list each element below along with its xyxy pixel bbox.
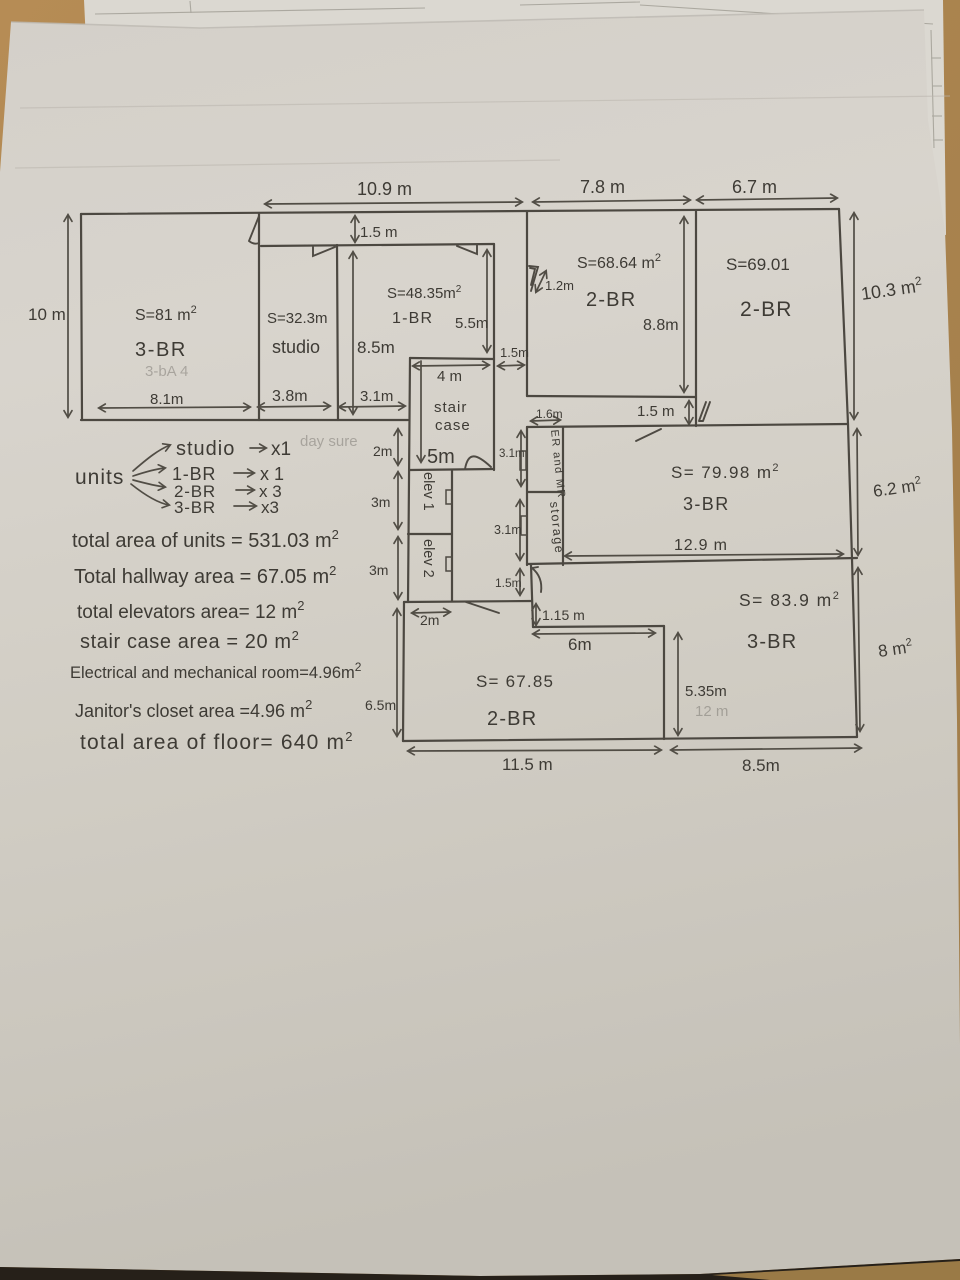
svg-text:1.5m: 1.5m: [500, 345, 529, 360]
svg-text:10.9 m: 10.9 m: [357, 179, 412, 199]
svg-text:2m: 2m: [373, 443, 392, 459]
svg-text:total area of units = 531.03 m: total area of units = 531.03 m2: [72, 527, 339, 552]
svg-text:1-BR: 1-BR: [392, 310, 433, 327]
svg-text:8.5m: 8.5m: [742, 756, 780, 775]
svg-text:1.5 m: 1.5 m: [360, 224, 398, 241]
svg-text:Janitor's closet area =4.96 m2: Janitor's closet area =4.96 m2: [75, 697, 312, 721]
svg-text:6.5m: 6.5m: [365, 697, 396, 713]
svg-text:2-BR: 2-BR: [740, 298, 793, 321]
svg-text:studio: studio: [272, 337, 320, 357]
svg-text:12.9 m: 12.9 m: [674, 537, 728, 554]
svg-text:S=48.35m2: S=48.35m2: [387, 284, 462, 302]
svg-text:6m: 6m: [568, 635, 592, 654]
svg-text:total area of floor= 640 m2: total area of floor= 640 m2: [80, 729, 354, 754]
svg-text:3-bA 4: 3-bA 4: [145, 363, 188, 380]
svg-text:8.8m: 8.8m: [643, 317, 679, 334]
svg-text:S= 79.98 m2: S= 79.98 m2: [671, 462, 780, 482]
svg-text:4 m: 4 m: [437, 368, 462, 385]
svg-text:3-BR: 3-BR: [174, 498, 216, 517]
svg-text:3-BR: 3-BR: [747, 631, 797, 653]
svg-text:S=69.01: S=69.01: [726, 255, 790, 274]
svg-text:5.5m: 5.5m: [455, 315, 488, 332]
svg-text:S= 67.85: S= 67.85: [476, 672, 554, 691]
svg-text:3.1m: 3.1m: [494, 523, 522, 537]
svg-text:S= 83.9 m2: S= 83.9 m2: [739, 590, 840, 610]
svg-text:stair case area = 20 m2: stair case area = 20 m2: [80, 628, 299, 653]
svg-text:case: case: [435, 417, 471, 434]
svg-text:5m: 5m: [427, 446, 455, 468]
svg-text:2-BR: 2-BR: [586, 289, 636, 311]
svg-text:8.5m: 8.5m: [357, 338, 395, 357]
svg-text:elev 1: elev 1: [420, 472, 436, 511]
svg-text:total elevators area= 12 m2: total elevators area= 12 m2: [77, 598, 304, 623]
svg-text:2m: 2m: [420, 612, 439, 628]
svg-text:1.15 m: 1.15 m: [542, 607, 585, 623]
svg-text:Electrical and mechanical room: Electrical and mechanical room=4.96m2: [70, 660, 362, 682]
svg-text:8.1m: 8.1m: [150, 391, 183, 408]
svg-text:x1: x1: [271, 439, 291, 460]
svg-text:10 m: 10 m: [28, 305, 66, 324]
svg-text:1.6m: 1.6m: [536, 407, 563, 421]
svg-text:elev 2: elev 2: [420, 539, 436, 578]
svg-text:11.5 m: 11.5 m: [502, 755, 553, 774]
svg-text:units: units: [75, 466, 124, 489]
svg-text:3m: 3m: [371, 494, 390, 510]
svg-text:studio: studio: [176, 438, 235, 460]
svg-text:stair: stair: [434, 399, 467, 416]
svg-text:1-BR: 1-BR: [172, 464, 216, 484]
svg-text:1.5 m: 1.5 m: [637, 403, 675, 420]
svg-text:6.7 m: 6.7 m: [732, 177, 777, 197]
svg-text:3m: 3m: [369, 562, 388, 578]
svg-text:3-BR: 3-BR: [135, 339, 187, 361]
svg-text:3.1m: 3.1m: [360, 388, 393, 405]
svg-text:7.8 m: 7.8 m: [580, 177, 625, 197]
svg-text:Total hallway area = 67.05 m2: Total hallway area = 67.05 m2: [74, 563, 336, 588]
svg-text:S=32.3m: S=32.3m: [267, 310, 327, 327]
svg-text:x 1: x 1: [260, 464, 284, 484]
svg-text:x3: x3: [261, 498, 279, 517]
svg-text:3-BR: 3-BR: [683, 494, 730, 514]
svg-text:2-BR: 2-BR: [487, 708, 537, 730]
svg-text:3.1m: 3.1m: [499, 448, 525, 460]
svg-text:day sure: day sure: [300, 433, 358, 450]
svg-text:3.8m: 3.8m: [272, 388, 308, 405]
svg-text:S=81 m2: S=81 m2: [135, 304, 197, 324]
svg-text:12 m: 12 m: [695, 703, 728, 720]
svg-text:5.35m: 5.35m: [685, 683, 727, 700]
svg-text:1.5m: 1.5m: [495, 576, 522, 590]
svg-text:1.2m: 1.2m: [545, 278, 574, 293]
svg-text:S=68.64 m2: S=68.64 m2: [577, 252, 661, 272]
